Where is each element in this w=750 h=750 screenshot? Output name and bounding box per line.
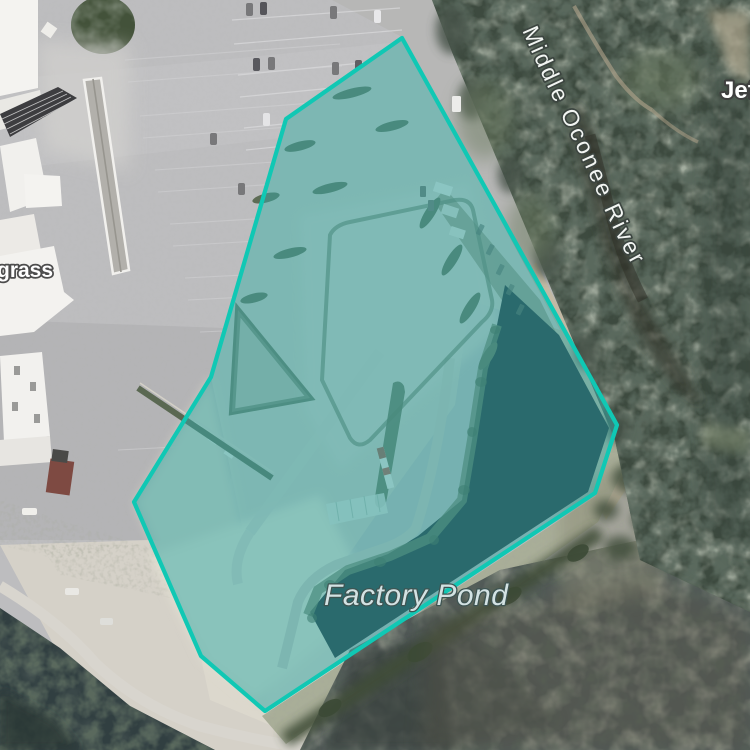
svg-text:grass: grass xyxy=(0,259,53,282)
svg-text:Jef: Jef xyxy=(721,77,750,104)
svg-text:Factory Pond: Factory Pond xyxy=(324,579,509,612)
